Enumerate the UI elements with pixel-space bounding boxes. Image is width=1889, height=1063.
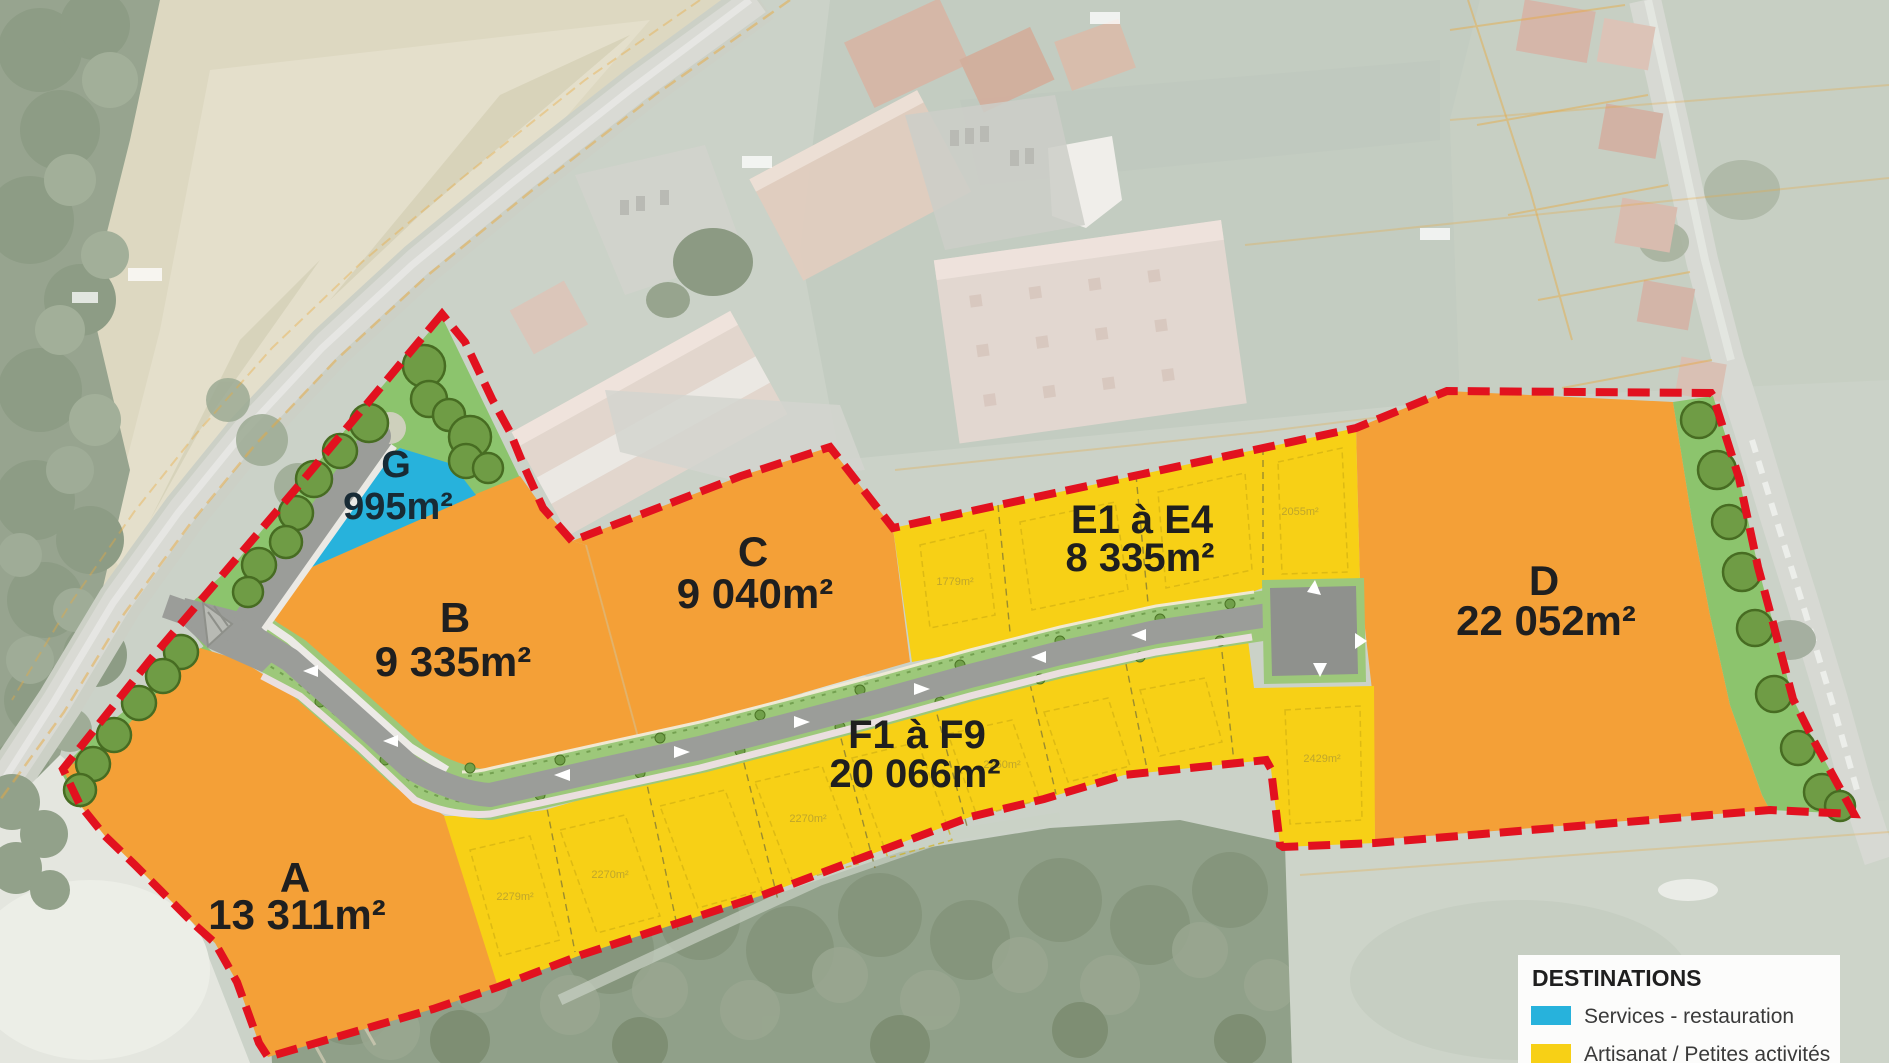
svg-text:8 335m²: 8 335m² [1066, 536, 1215, 580]
svg-text:2055m²: 2055m² [1281, 506, 1319, 518]
svg-text:2429m²: 2429m² [1303, 753, 1341, 765]
svg-text:2270m²: 2270m² [591, 869, 629, 881]
svg-text:9 040m²: 9 040m² [677, 570, 833, 617]
svg-text:2279m²: 2279m² [496, 891, 534, 903]
svg-text:Services - restauration: Services - restauration [1584, 1005, 1794, 1028]
svg-text:1779m²: 1779m² [936, 576, 974, 588]
svg-text:9 335m²: 9 335m² [375, 638, 531, 685]
svg-text:13 311m²: 13 311m² [208, 891, 385, 938]
svg-text:DESTINATIONS: DESTINATIONS [1532, 965, 1702, 991]
svg-text:G: G [381, 444, 411, 486]
svg-text:F1 à F9: F1 à F9 [848, 713, 986, 757]
svg-text:B: B [440, 594, 470, 641]
svg-text:22 052m²: 22 052m² [1456, 597, 1636, 644]
svg-text:2270m²: 2270m² [789, 813, 827, 825]
svg-text:995m²: 995m² [343, 486, 453, 528]
svg-text:20 066m²: 20 066m² [829, 752, 1000, 796]
svg-text:C: C [738, 528, 768, 575]
svg-text:Artisanat / Petites activités: Artisanat / Petites activités [1584, 1043, 1830, 1063]
